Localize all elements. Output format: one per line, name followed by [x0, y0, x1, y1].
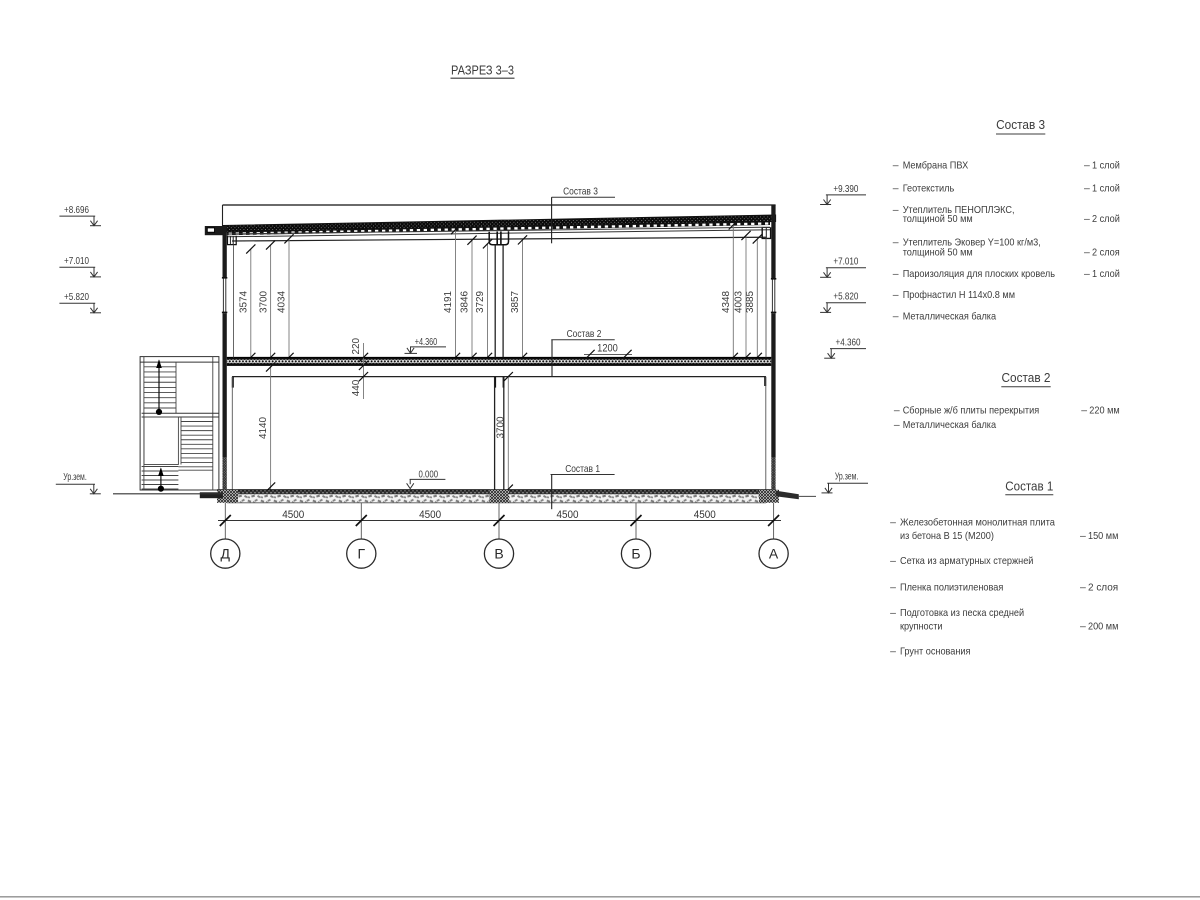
svg-text:+9.390: +9.390: [833, 183, 858, 195]
svg-text:4500: 4500: [557, 509, 579, 521]
svg-text:из бетона В 15 (М200): из бетона В 15 (М200): [900, 530, 994, 542]
svg-text:3700: 3700: [495, 416, 506, 438]
svg-text:+7.010: +7.010: [64, 255, 89, 267]
svg-text:+8.696: +8.696: [64, 204, 89, 216]
svg-text:Ур.зем.: Ур.зем.: [835, 471, 859, 482]
svg-text:2 слоя: 2 слоя: [1088, 583, 1118, 594]
svg-text:–: –: [894, 406, 900, 417]
svg-text:1 слой: 1 слой: [1092, 184, 1120, 195]
svg-text:0.000: 0.000: [419, 468, 439, 480]
svg-text:4034: 4034: [277, 291, 288, 313]
svg-text:3574: 3574: [239, 291, 250, 313]
svg-text:–: –: [890, 647, 896, 658]
svg-text:–: –: [893, 312, 899, 323]
svg-text:4191: 4191: [443, 291, 454, 313]
svg-text:Металлическая балка: Металлическая балка: [903, 311, 997, 323]
svg-text:–: –: [1084, 248, 1090, 259]
svg-text:–: –: [1084, 214, 1090, 225]
svg-text:Состав 2: Состав 2: [1002, 371, 1051, 385]
svg-text:3700: 3700: [258, 291, 269, 313]
svg-text:–: –: [890, 518, 896, 529]
svg-text:РАЗРЕЗ 3–3: РАЗРЕЗ 3–3: [451, 63, 514, 78]
svg-text:Состав 3: Состав 3: [996, 118, 1045, 132]
svg-text:толщиной 50 мм: толщиной 50 мм: [903, 248, 973, 259]
svg-text:–: –: [890, 583, 896, 594]
svg-text:+4.360: +4.360: [836, 337, 861, 349]
svg-text:3885: 3885: [745, 291, 756, 313]
svg-text:–: –: [893, 184, 899, 195]
svg-text:Ур.зем.: Ур.зем.: [63, 472, 87, 483]
svg-text:4500: 4500: [419, 509, 441, 521]
svg-text:4003: 4003: [734, 291, 745, 313]
svg-text:+5.820: +5.820: [833, 291, 858, 303]
svg-text:–: –: [890, 556, 896, 567]
svg-text:220: 220: [351, 338, 362, 355]
svg-text:3846: 3846: [460, 291, 471, 313]
svg-text:1 слой: 1 слой: [1092, 161, 1120, 172]
svg-text:Г: Г: [358, 546, 366, 562]
svg-text:Пленка полиэтиленовая: Пленка полиэтиленовая: [900, 583, 1003, 594]
svg-text:200 мм: 200 мм: [1088, 621, 1118, 632]
svg-text:Пароизоляция для плоских крове: Пароизоляция для плоских кровель: [903, 269, 1055, 280]
svg-text:+7.010: +7.010: [833, 256, 858, 268]
svg-text:–: –: [1081, 406, 1087, 417]
svg-text:–: –: [1080, 583, 1086, 594]
svg-text:Состав 2: Состав 2: [567, 329, 602, 340]
svg-text:крупности: крупности: [900, 621, 943, 632]
svg-text:Металлическая балка: Металлическая балка: [903, 419, 997, 431]
svg-text:Подготовка из песка средней: Подготовка из песка средней: [900, 608, 1024, 619]
svg-text:Сетка из арматурных стержней: Сетка из арматурных стержней: [900, 556, 1034, 567]
svg-text:Мембрана ПВХ: Мембрана ПВХ: [903, 160, 969, 172]
svg-text:–: –: [894, 420, 900, 431]
svg-text:–: –: [1084, 184, 1090, 195]
svg-text:–: –: [893, 205, 899, 216]
svg-text:–: –: [893, 290, 899, 301]
svg-text:толщиной 50 мм: толщиной 50 мм: [903, 214, 973, 225]
svg-text:–: –: [890, 608, 896, 619]
svg-text:3729: 3729: [475, 291, 486, 313]
svg-text:Состав 1: Состав 1: [1005, 480, 1053, 494]
svg-text:–: –: [893, 238, 899, 249]
svg-text:150 мм: 150 мм: [1088, 531, 1118, 542]
svg-text:–: –: [893, 161, 899, 172]
svg-text:–: –: [1084, 269, 1090, 280]
svg-text:4348: 4348: [721, 291, 732, 313]
svg-text:Геотекстиль: Геотекстиль: [903, 184, 955, 195]
svg-text:1200: 1200: [597, 343, 618, 355]
svg-text:220 мм: 220 мм: [1089, 406, 1119, 417]
svg-text:3857: 3857: [510, 291, 521, 313]
svg-text:–: –: [1080, 531, 1086, 542]
svg-text:–: –: [1080, 621, 1086, 632]
svg-text:А: А: [769, 546, 779, 562]
svg-text:Профнастил Н 114х0.8 мм: Профнастил Н 114х0.8 мм: [903, 289, 1015, 301]
svg-text:2 слой: 2 слой: [1092, 214, 1120, 225]
svg-text:1 слой: 1 слой: [1092, 269, 1120, 280]
svg-text:–: –: [1084, 161, 1090, 172]
svg-text:В: В: [494, 546, 503, 562]
svg-text:Состав 3: Состав 3: [563, 186, 598, 197]
svg-text:4500: 4500: [282, 509, 304, 521]
svg-text:4500: 4500: [694, 509, 716, 521]
svg-text:4140: 4140: [258, 417, 269, 439]
svg-text:Б: Б: [631, 546, 640, 562]
svg-text:+5.820: +5.820: [64, 291, 89, 303]
svg-text:Грунт основания: Грунт основания: [900, 647, 971, 658]
svg-text:Железобетонная монолитная пли: Железобетонная монолитная плита: [900, 517, 1055, 529]
svg-text:Д: Д: [221, 546, 231, 562]
svg-text:2 слоя: 2 слоя: [1092, 248, 1120, 259]
svg-text:440: 440: [351, 379, 362, 396]
svg-text:Состав 1: Состав 1: [565, 464, 600, 475]
svg-text:Сборные ж/б плиты перекрытия: Сборные ж/б плиты перекрытия: [903, 405, 1039, 417]
svg-text:–: –: [893, 269, 899, 280]
